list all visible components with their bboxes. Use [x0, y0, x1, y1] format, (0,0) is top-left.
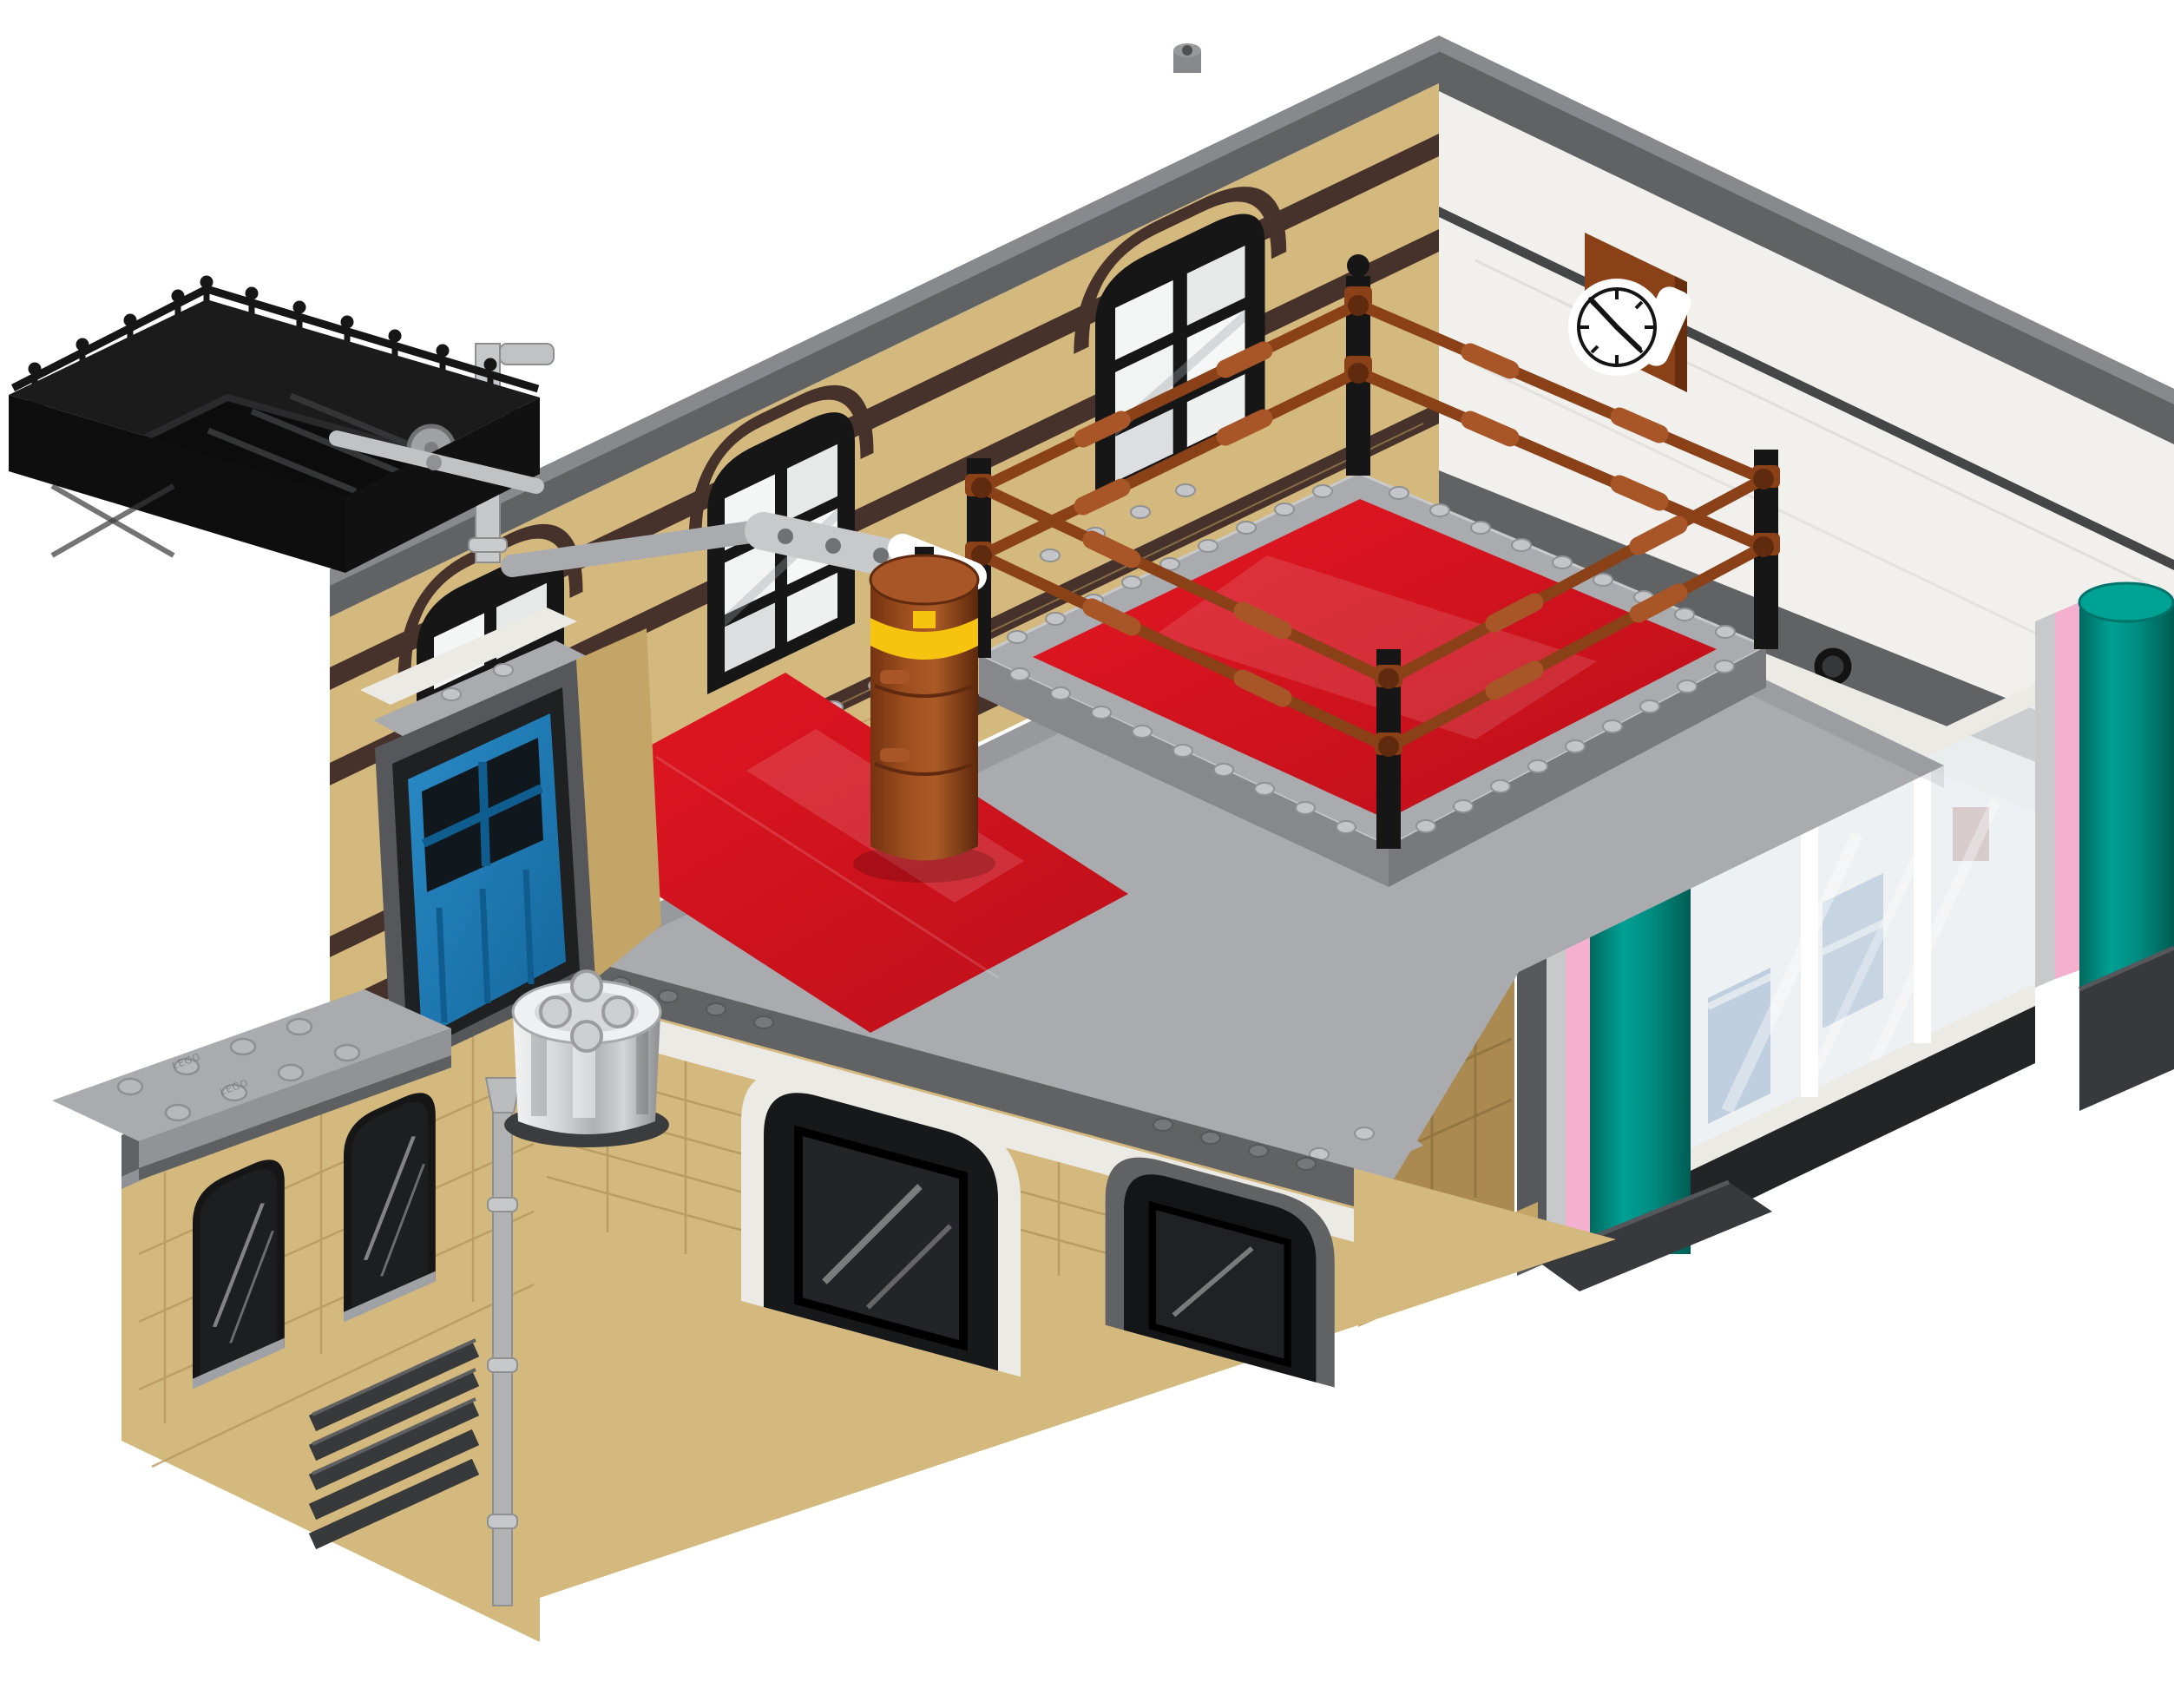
lego-set-photo: LEGO LEGO — [0, 0, 2174, 1708]
post-top-pin — [1347, 254, 1369, 277]
chrome-canister — [504, 971, 669, 1147]
photo-stage: LEGO LEGO — [0, 0, 2174, 1708]
pink-stripe — [2055, 602, 2079, 979]
band-notch — [913, 611, 936, 628]
column-top-cap — [2079, 583, 2173, 621]
teal-half-cylinder — [2079, 601, 2174, 993]
glass-mullion — [1914, 761, 1931, 1043]
grey-stripe — [2035, 613, 2055, 988]
bag-top — [870, 555, 978, 604]
glass-mullion — [1801, 815, 1818, 1097]
trim-pin — [1173, 43, 1201, 73]
